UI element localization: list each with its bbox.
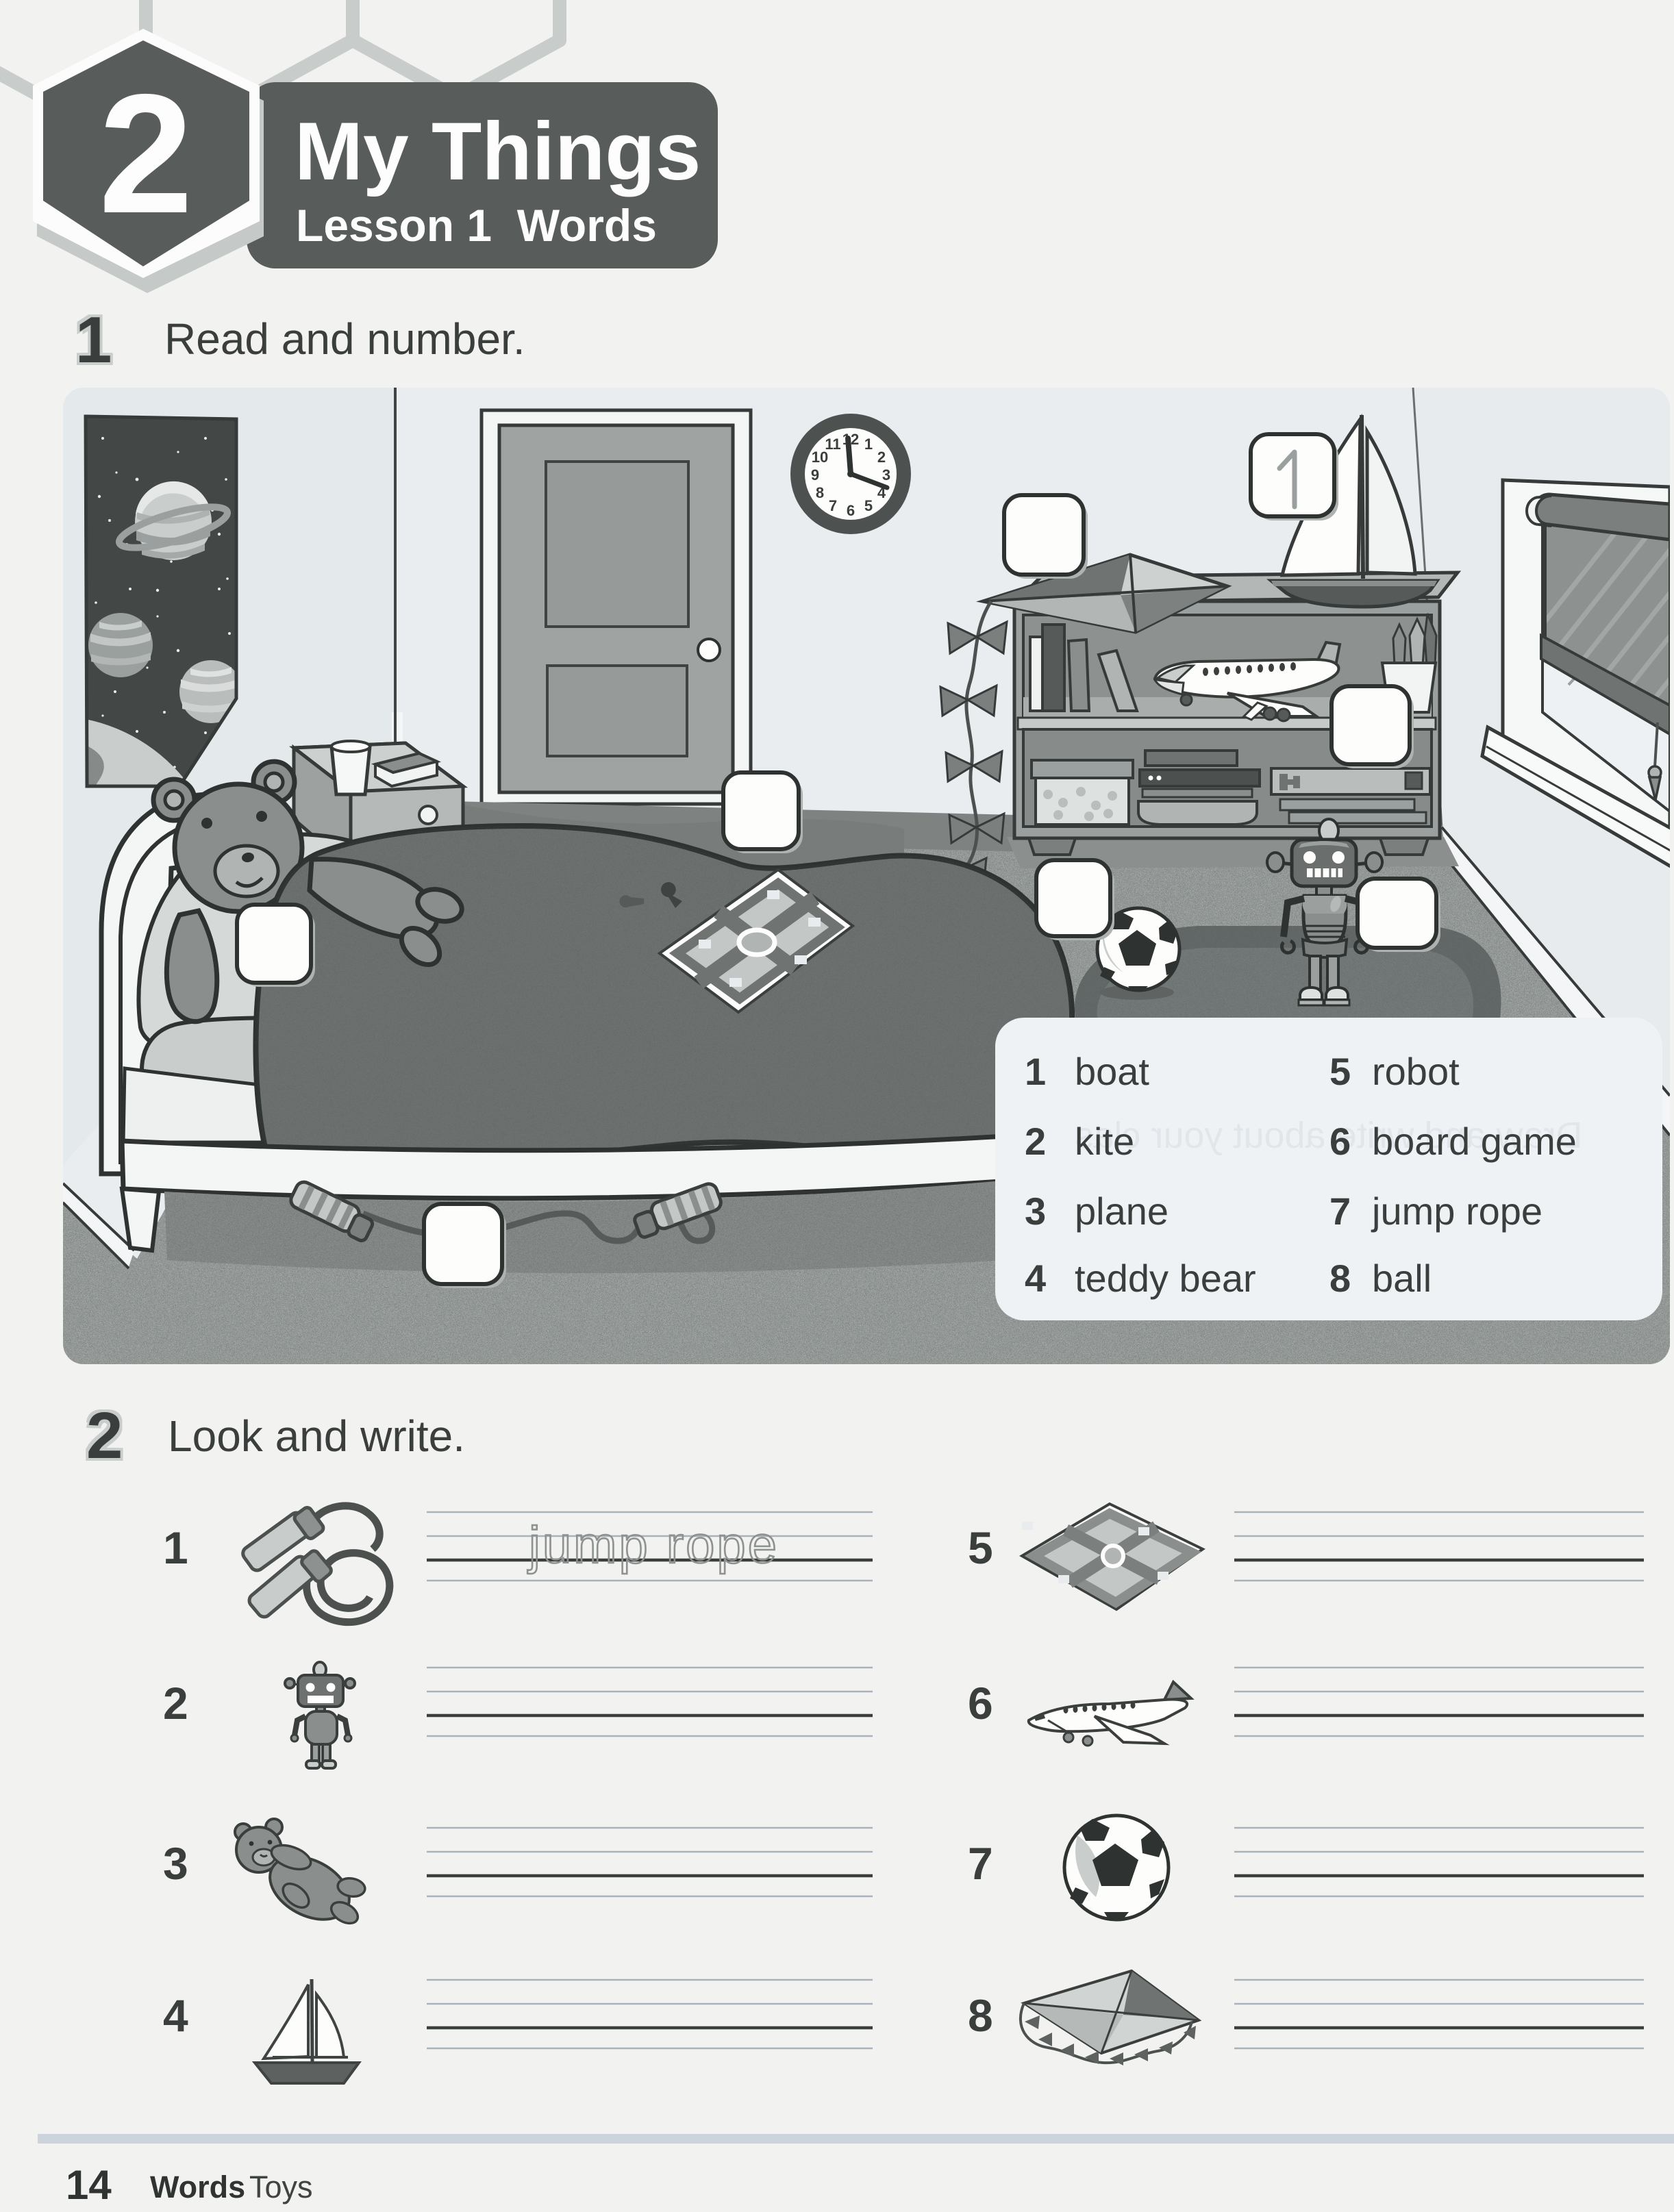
svg-text:6: 6 (968, 1678, 993, 1729)
svg-text:8: 8 (1329, 1257, 1351, 1300)
svg-text:7: 7 (1329, 1190, 1351, 1233)
svg-text:7: 7 (968, 1838, 993, 1889)
svg-text:4: 4 (163, 1990, 188, 2041)
svg-text:9: 9 (811, 466, 819, 483)
svg-text:8: 8 (816, 484, 824, 501)
svg-text:5: 5 (864, 497, 873, 514)
svg-text:teddy bear: teddy bear (1075, 1257, 1256, 1300)
svg-text:2: 2 (1025, 1120, 1046, 1163)
svg-text:ball: ball (1372, 1257, 1432, 1300)
svg-text:My Things: My Things (295, 105, 701, 197)
svg-text:boat: boat (1075, 1050, 1149, 1093)
svg-text:4: 4 (1025, 1257, 1046, 1300)
svg-text:11: 11 (825, 436, 840, 453)
svg-text:plane: plane (1075, 1190, 1169, 1233)
svg-text:3: 3 (882, 466, 890, 483)
svg-text:board game: board game (1372, 1120, 1577, 1163)
svg-text:7: 7 (829, 497, 837, 514)
svg-text:6: 6 (1329, 1120, 1351, 1163)
svg-text:1: 1 (163, 1522, 188, 1573)
svg-text:8: 8 (968, 1990, 993, 2041)
svg-text:6: 6 (847, 502, 855, 519)
svg-text:2: 2 (99, 58, 193, 249)
svg-text:kite: kite (1075, 1120, 1134, 1163)
svg-text:Lesson 1 Words: Lesson 1 Words (296, 200, 657, 251)
svg-text:1: 1 (1025, 1050, 1046, 1093)
svg-text:1: 1 (864, 436, 873, 453)
svg-text:2: 2 (163, 1678, 188, 1729)
svg-text:2: 2 (877, 449, 886, 466)
svg-text:5: 5 (968, 1522, 993, 1573)
svg-text:5: 5 (1329, 1050, 1351, 1093)
svg-text:jump rope: jump rope (527, 1516, 779, 1574)
svg-text:3: 3 (163, 1838, 188, 1889)
svg-text:jump rope: jump rope (1371, 1190, 1542, 1233)
svg-text:robot: robot (1372, 1050, 1460, 1093)
svg-text:3: 3 (1025, 1190, 1046, 1233)
